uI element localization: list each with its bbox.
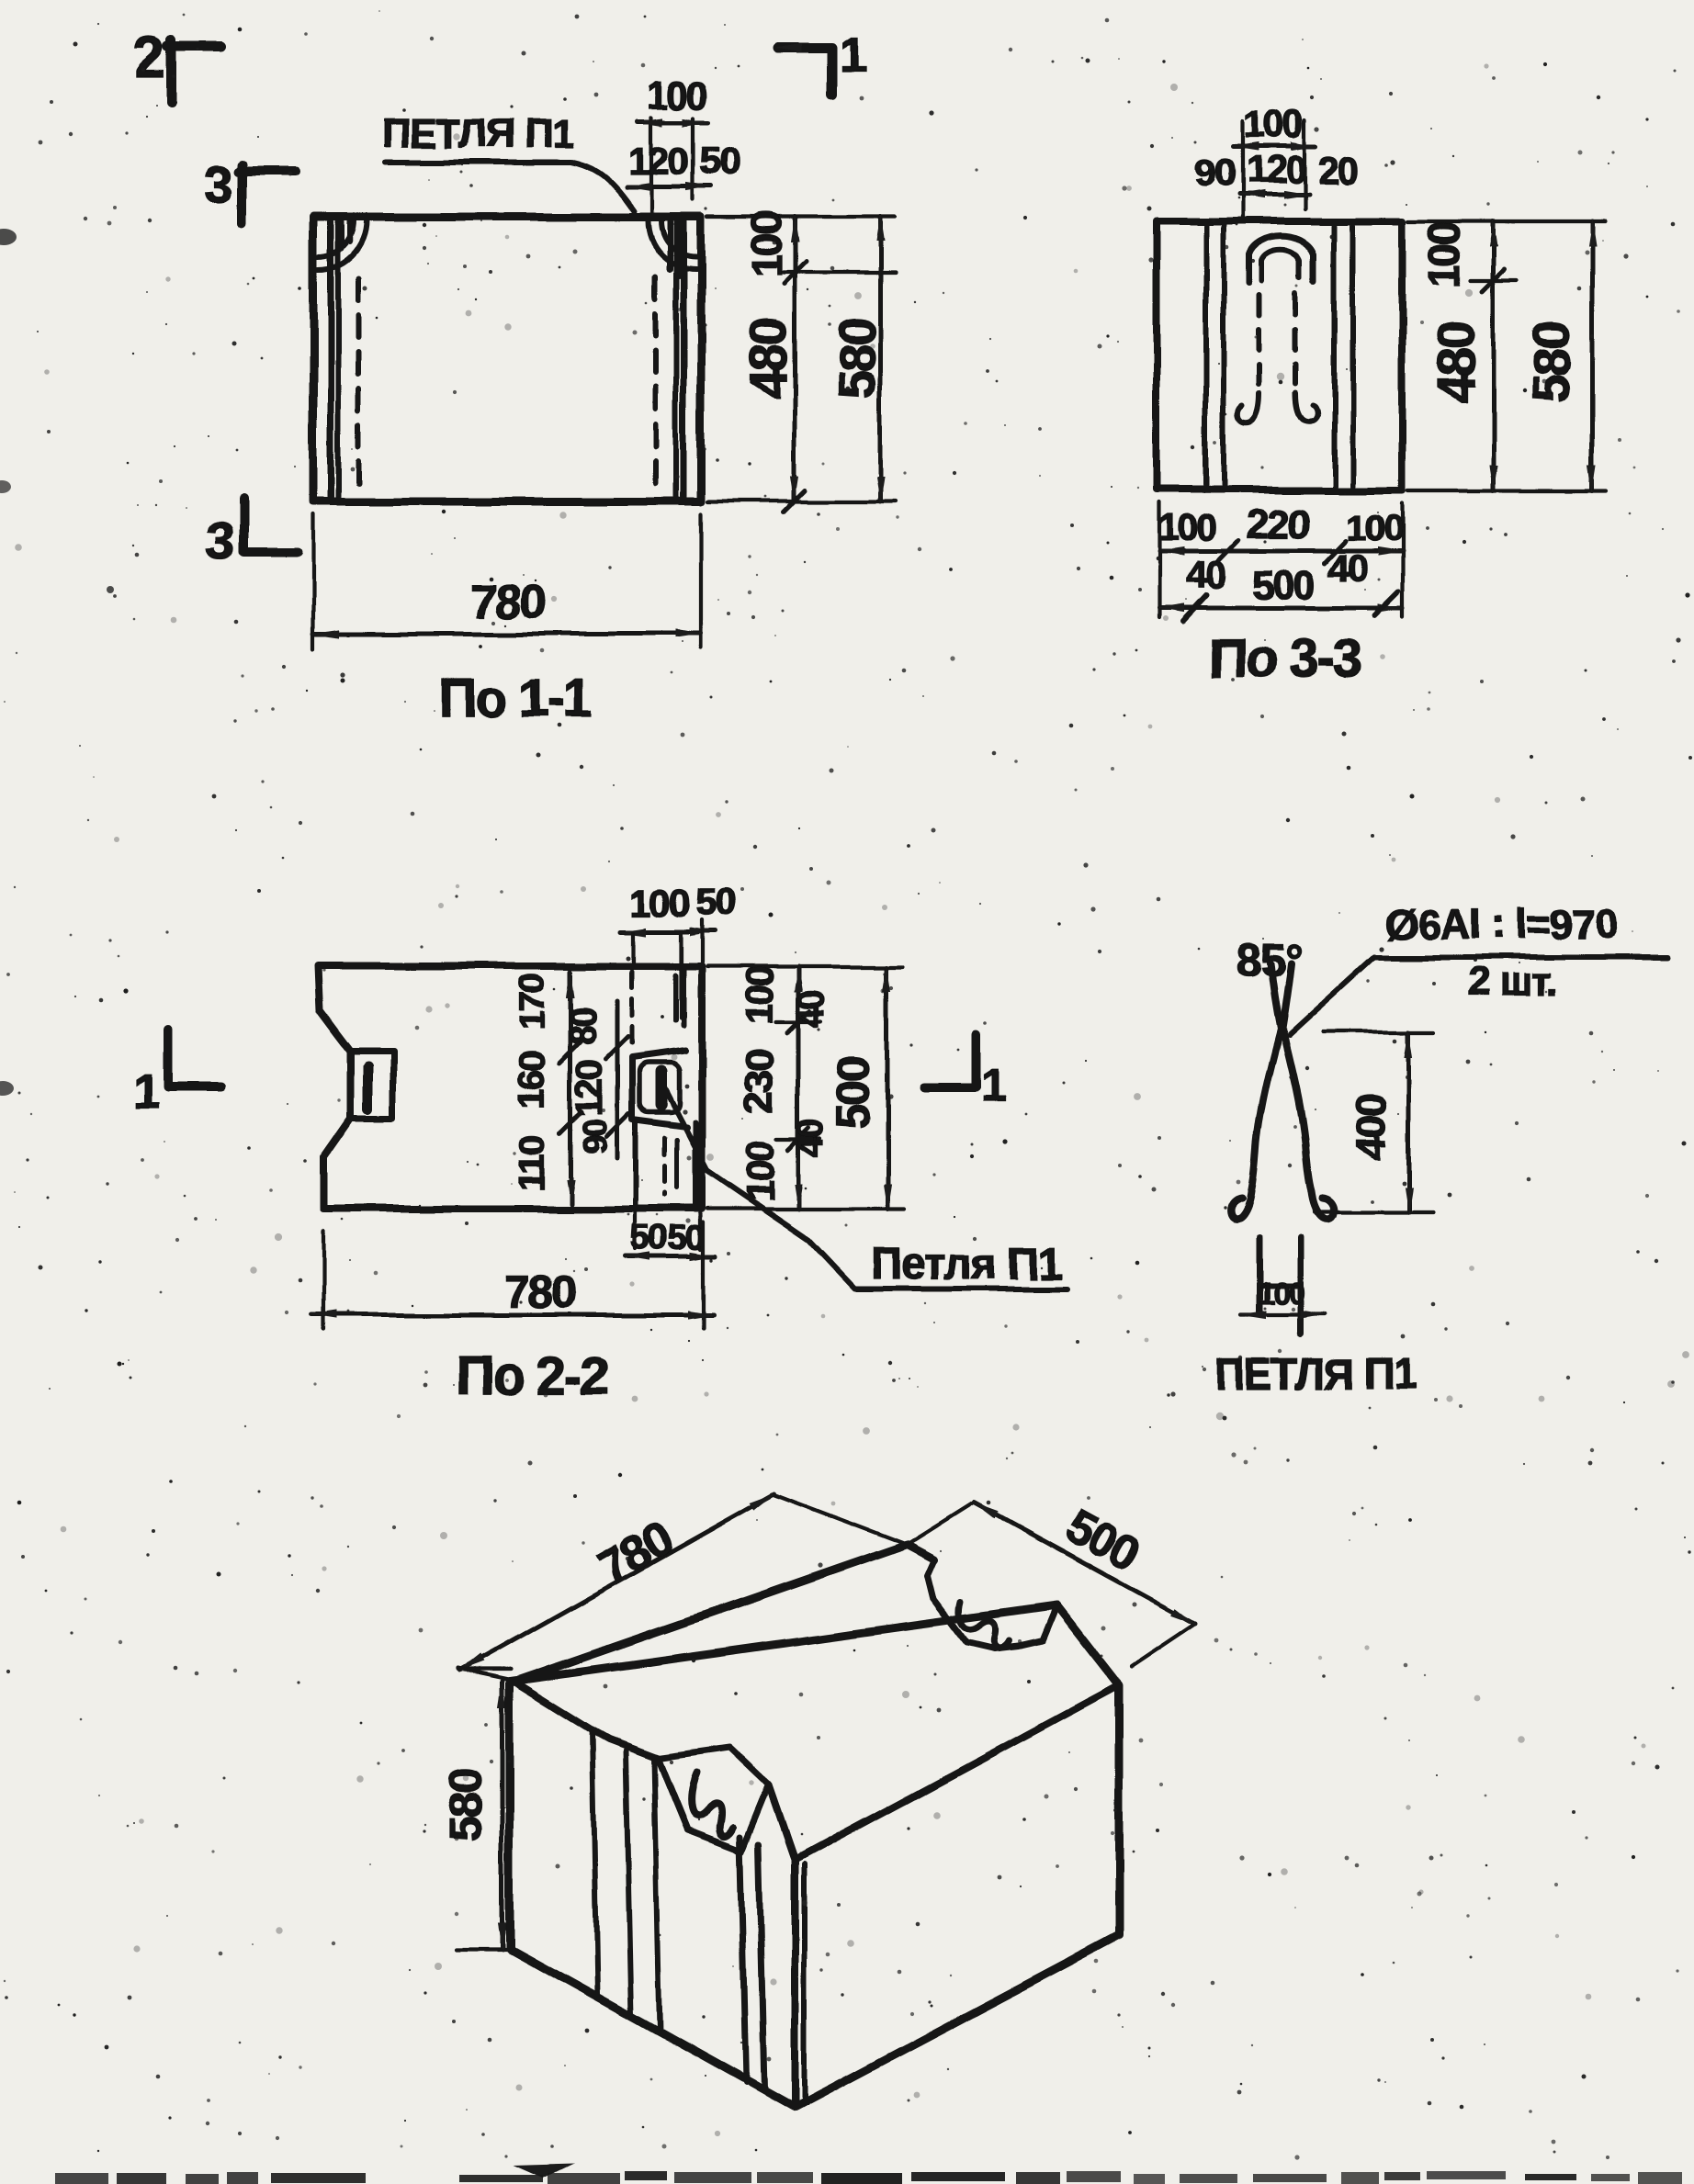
svg-text:480: 480 bbox=[740, 318, 797, 398]
svg-text:100: 100 bbox=[630, 881, 690, 924]
svg-text:100: 100 bbox=[1347, 508, 1403, 548]
svg-text:100: 100 bbox=[738, 1142, 781, 1201]
svg-text:50: 50 bbox=[699, 140, 739, 183]
svg-text:1: 1 bbox=[840, 28, 867, 83]
svg-text:100: 100 bbox=[647, 73, 706, 117]
svg-text:120: 120 bbox=[1246, 148, 1305, 191]
svg-text:2 шт.: 2 шт. bbox=[1467, 960, 1557, 1005]
svg-text:40: 40 bbox=[1187, 553, 1226, 596]
svg-text:100: 100 bbox=[742, 212, 790, 277]
svg-text:110: 110 bbox=[512, 1136, 552, 1190]
svg-text:500: 500 bbox=[828, 1057, 879, 1129]
svg-text:По 1-1: По 1-1 bbox=[438, 669, 591, 728]
svg-text:580: 580 bbox=[1522, 321, 1580, 401]
svg-text:580: 580 bbox=[828, 318, 886, 398]
svg-text:120: 120 bbox=[628, 140, 688, 183]
svg-text:40: 40 bbox=[1328, 548, 1366, 589]
svg-text:1: 1 bbox=[134, 1065, 161, 1119]
svg-text:780: 780 bbox=[470, 575, 545, 628]
svg-text:220: 220 bbox=[1246, 502, 1308, 547]
svg-text:80: 80 bbox=[563, 1007, 604, 1044]
svg-text:Ø6АI : l=970: Ø6АI : l=970 bbox=[1385, 900, 1618, 948]
svg-text:100: 100 bbox=[1243, 103, 1303, 146]
svg-text:40: 40 bbox=[791, 991, 831, 1029]
svg-text:100: 100 bbox=[1159, 508, 1215, 548]
svg-text:20: 20 bbox=[1318, 149, 1358, 192]
svg-text:50: 50 bbox=[696, 880, 736, 923]
svg-text:50: 50 bbox=[668, 1219, 704, 1257]
svg-text:100: 100 bbox=[1420, 222, 1468, 287]
svg-text:90: 90 bbox=[1195, 151, 1235, 194]
svg-text:230: 230 bbox=[737, 1051, 782, 1113]
svg-text:480: 480 bbox=[1427, 322, 1485, 402]
svg-text:500: 500 bbox=[1252, 563, 1315, 608]
svg-text:400: 400 bbox=[1347, 1095, 1395, 1160]
svg-text:170: 170 bbox=[512, 974, 552, 1030]
svg-text:2: 2 bbox=[134, 27, 165, 90]
svg-text:40: 40 bbox=[791, 1120, 831, 1157]
svg-text:100: 100 bbox=[738, 966, 781, 1026]
svg-text:100: 100 bbox=[1258, 1277, 1305, 1312]
svg-text:ПЕТЛЯ П1: ПЕТЛЯ П1 bbox=[1214, 1350, 1417, 1398]
svg-text:Петля П1: Петля П1 bbox=[871, 1240, 1063, 1289]
svg-text:По 2-2: По 2-2 bbox=[456, 1346, 607, 1406]
svg-text:1: 1 bbox=[981, 1060, 1008, 1113]
svg-text:90: 90 bbox=[576, 1120, 614, 1154]
svg-text:120: 120 bbox=[570, 1060, 610, 1116]
svg-text:ПЕТЛЯ П1: ПЕТЛЯ П1 bbox=[381, 111, 574, 156]
svg-text:780: 780 bbox=[503, 1266, 575, 1318]
svg-text:160: 160 bbox=[512, 1053, 552, 1109]
svg-text:3: 3 bbox=[204, 155, 232, 213]
svg-text:3: 3 bbox=[206, 512, 234, 569]
svg-text:50: 50 bbox=[631, 1219, 667, 1257]
